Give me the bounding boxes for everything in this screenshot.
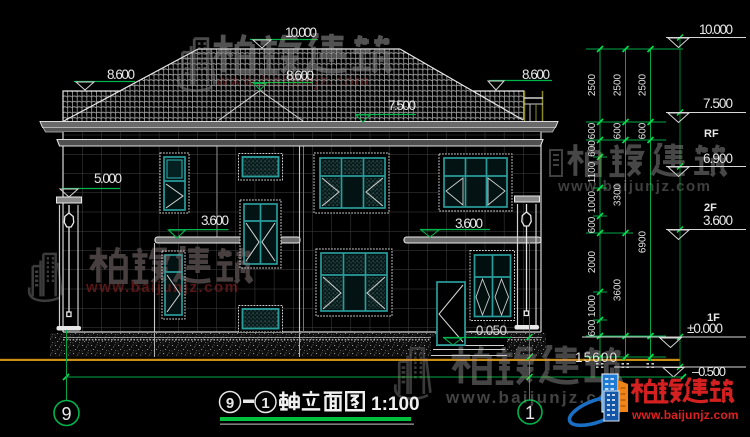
svg-text:www.baijunjz.com: www.baijunjz.com [215,73,370,90]
svg-text:600: 600 [587,122,598,139]
svg-text:1000: 1000 [587,294,598,317]
svg-text:2500: 2500 [638,73,649,96]
svg-text:www.baijunjz.com: www.baijunjz.com [85,279,239,296]
svg-text:2000: 2000 [587,250,598,273]
svg-text:www.baijunjz.com: www.baijunjz.com [557,178,711,195]
svg-text:600: 600 [587,319,598,336]
svg-text:–0.500: –0.500 [692,364,726,379]
svg-text:–0.050: –0.050 [469,323,507,338]
svg-text:3.600: 3.600 [201,213,229,228]
svg-text:600: 600 [613,122,624,139]
svg-text:2500: 2500 [587,73,598,96]
svg-text:1: 1 [261,395,269,412]
svg-text:10.000: 10.000 [699,22,733,37]
svg-text:2500: 2500 [613,73,624,96]
svg-text:3.600: 3.600 [455,216,483,231]
svg-text:7.500: 7.500 [388,98,416,113]
svg-text:RF: RF [704,128,719,140]
svg-text:±0.000: ±0.000 [687,321,723,336]
svg-text:www.baijunjz.com: www.baijunjz.com [631,408,739,422]
svg-text:9: 9 [61,404,71,424]
svg-text:3.600: 3.600 [703,213,733,228]
svg-text:1:100: 1:100 [371,394,420,415]
svg-text:8.600: 8.600 [107,67,135,82]
svg-text:600: 600 [587,216,598,233]
svg-text:600: 600 [638,122,649,139]
svg-text:3600: 3600 [613,278,624,301]
svg-text:9: 9 [226,395,234,412]
svg-text:8.600: 8.600 [522,67,550,82]
svg-text:6900: 6900 [638,230,649,253]
svg-text:5.000: 5.000 [94,171,122,186]
svg-text:7.500: 7.500 [703,96,733,111]
